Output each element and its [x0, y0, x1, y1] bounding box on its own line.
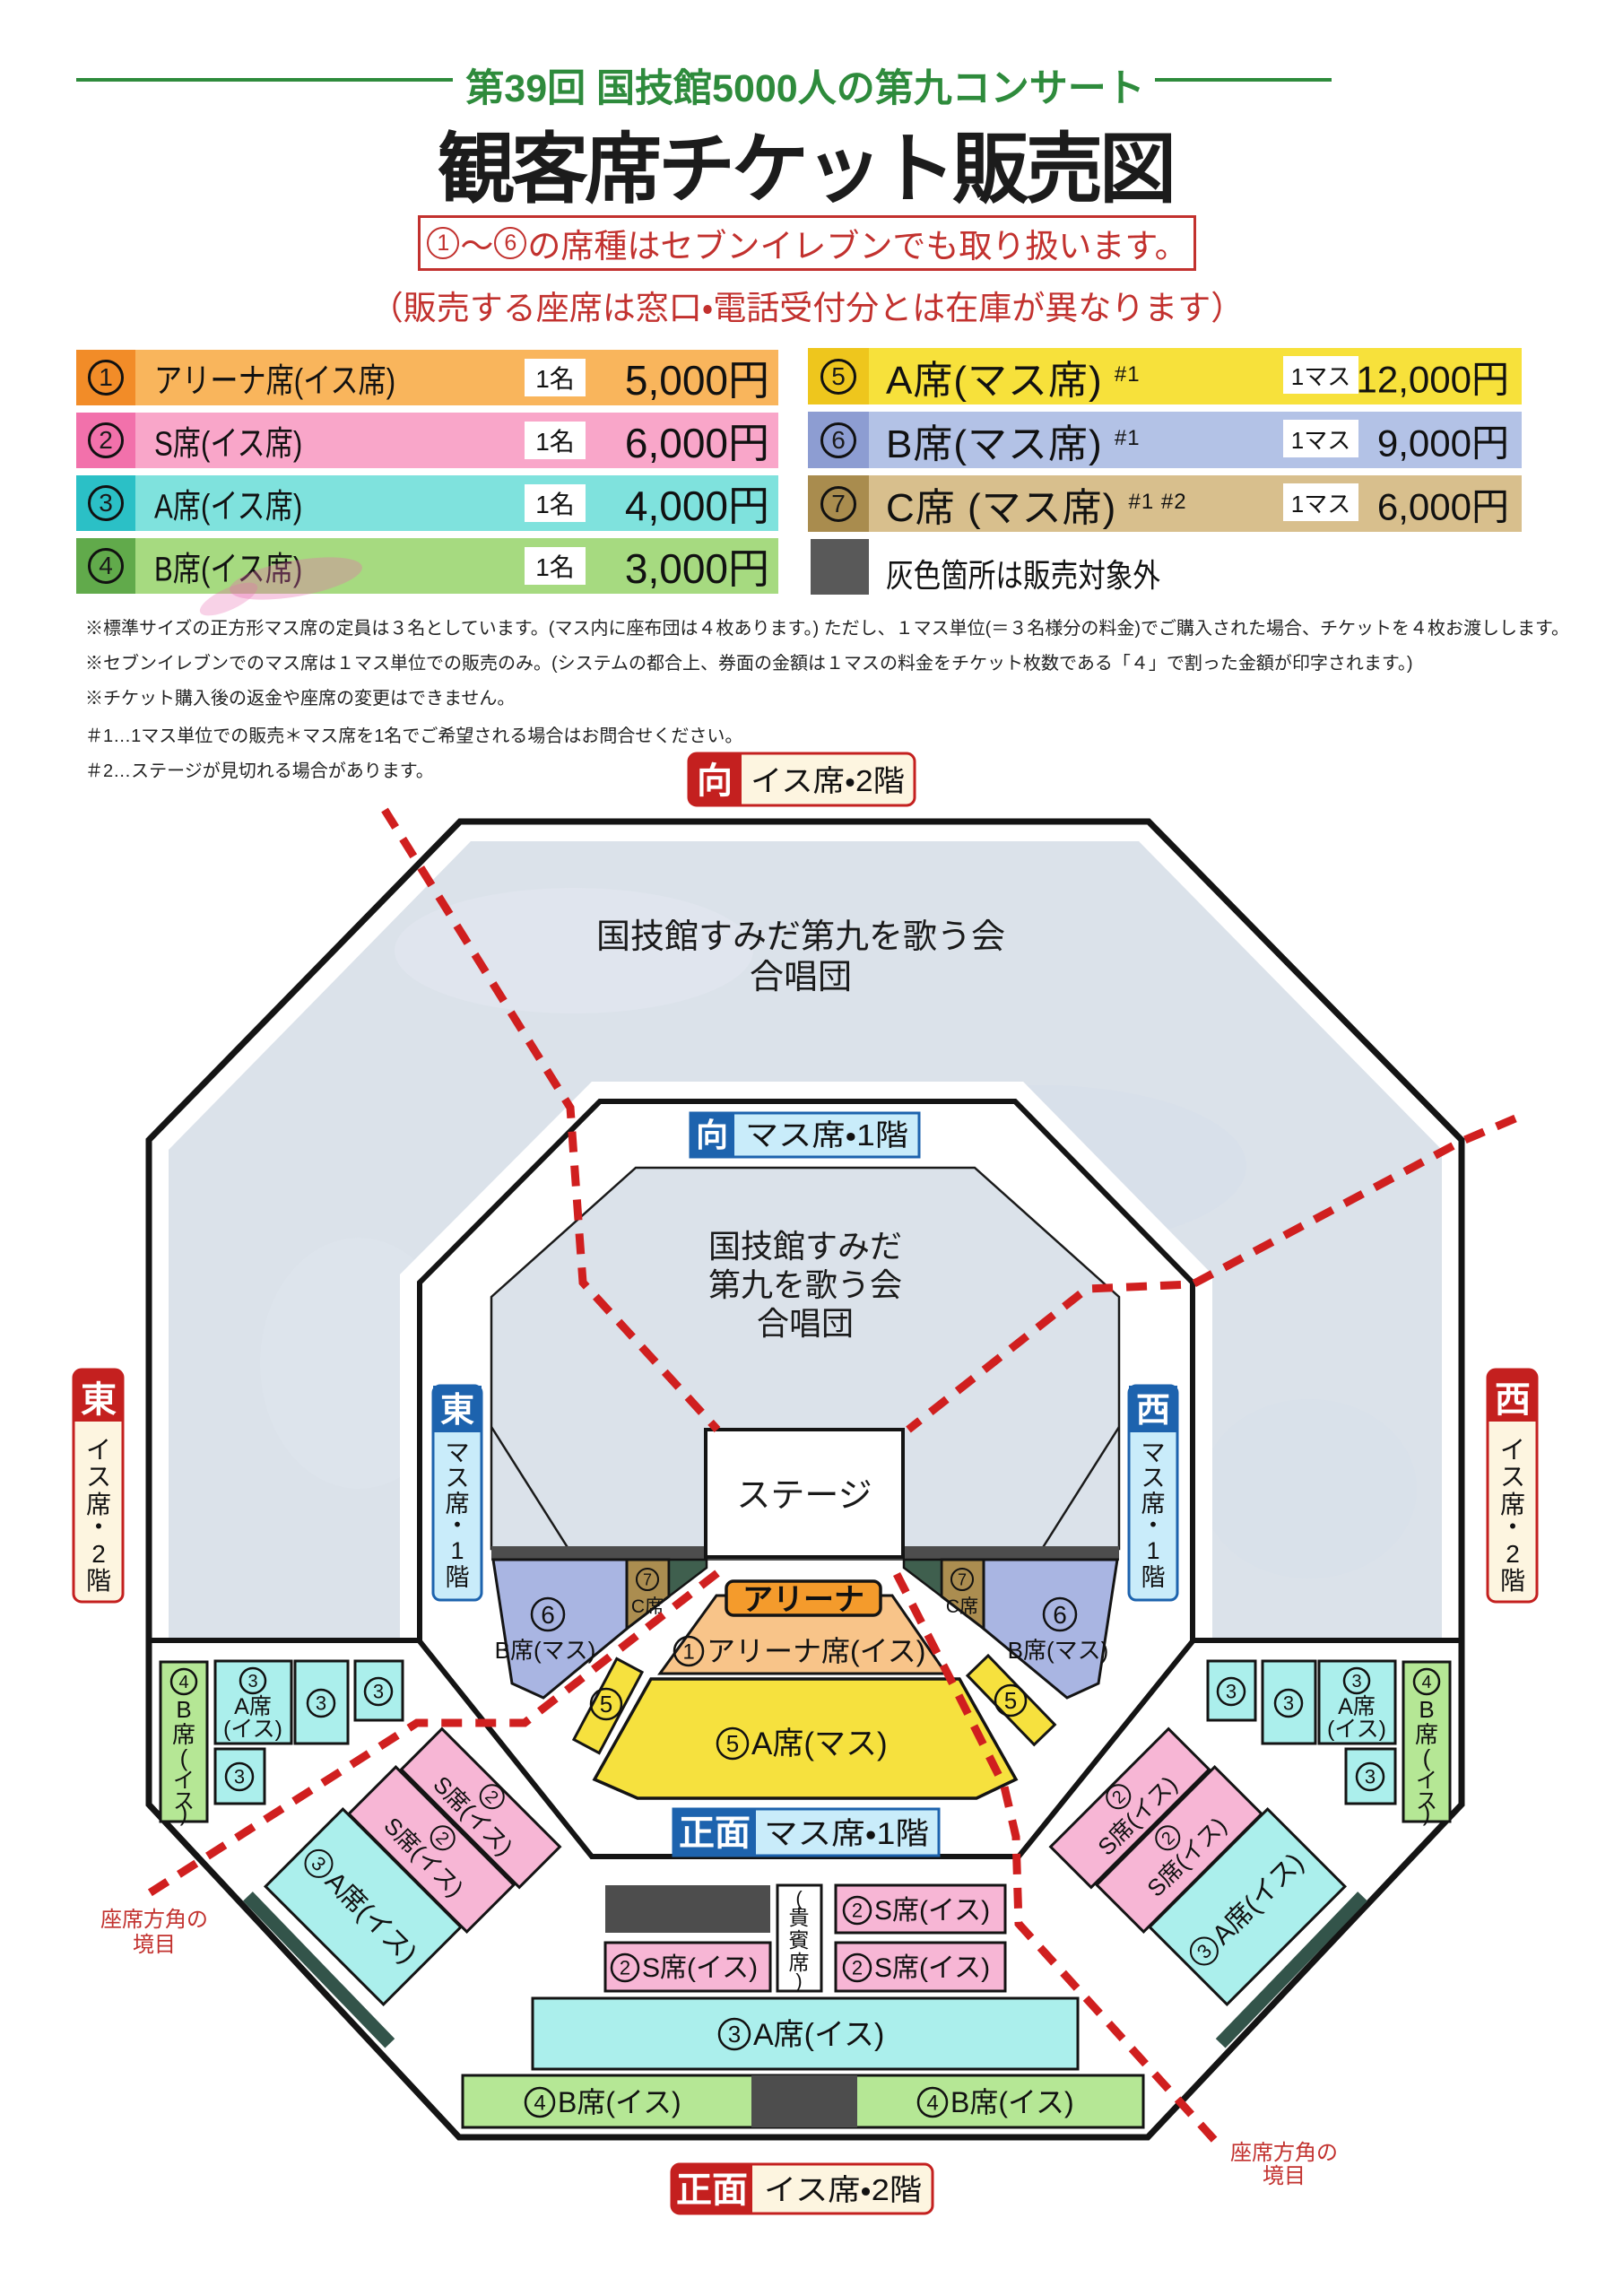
svg-text:イ: イ: [1500, 1436, 1525, 1464]
svg-text:向: 向: [697, 761, 733, 801]
svg-text:・: ・: [1141, 1512, 1166, 1539]
svg-text:A席: A席: [1338, 1694, 1376, 1719]
svg-text:6: 6: [541, 1601, 555, 1629]
svg-text:B席(イス): B席(イス): [558, 2086, 681, 2118]
svg-text:貴: 貴: [789, 1906, 810, 1929]
svg-text:7: 7: [643, 1570, 652, 1588]
svg-text:国技館すみだ第九を歌う会: 国技館すみだ第九を歌う会: [596, 918, 1005, 956]
svg-text:東: 東: [81, 1380, 117, 1420]
svg-text:5: 5: [1004, 1687, 1017, 1714]
svg-text:(: (: [1423, 1744, 1431, 1771]
svg-text:階: 階: [1141, 1564, 1166, 1591]
svg-text:3: 3: [1226, 1681, 1237, 1703]
svg-text:A席(イス): A席(イス): [753, 2018, 884, 2052]
svg-text:合唱団: 合唱団: [757, 1305, 854, 1342]
svg-text:ス: ス: [1141, 1465, 1166, 1492]
svg-text:第九を歌う会: 第九を歌う会: [708, 1266, 902, 1303]
svg-text:・: ・: [446, 1512, 470, 1539]
svg-text:A席: A席: [234, 1694, 272, 1719]
svg-text:3: 3: [234, 1766, 245, 1788]
svg-text:B: B: [176, 1696, 191, 1723]
svg-text:階: 階: [86, 1567, 111, 1595]
svg-text:4: 4: [926, 2091, 938, 2115]
svg-text:座席方角の: 座席方角の: [1230, 2141, 1338, 2165]
svg-text:5: 5: [726, 1730, 739, 1757]
svg-text:B: B: [1419, 1696, 1434, 1723]
svg-text:階: 階: [1500, 1567, 1525, 1595]
svg-text:2: 2: [91, 1540, 106, 1568]
svg-text:4: 4: [534, 2091, 545, 2115]
svg-text:): ): [180, 1799, 188, 1826]
svg-text:3: 3: [1365, 1766, 1376, 1788]
svg-text:B席(マス): B席(マス): [495, 1637, 596, 1664]
svg-text:): ): [795, 1970, 802, 1992]
svg-text:1: 1: [1146, 1537, 1159, 1564]
svg-text:ス: ス: [86, 1463, 111, 1491]
svg-text:国技館すみだ: 国技館すみだ: [708, 1228, 902, 1265]
svg-text:座席方角の: 座席方角の: [100, 1908, 208, 1932]
svg-text:ス: ス: [1500, 1463, 1525, 1491]
svg-text:東: 東: [440, 1392, 474, 1430]
svg-text:正面: 正面: [676, 2170, 748, 2210]
svg-text:マ: マ: [1141, 1439, 1166, 1466]
svg-text:5: 5: [600, 1691, 612, 1718]
svg-text:C席: C席: [946, 1596, 978, 1617]
svg-text:マス席・1階: マス席・1階: [745, 1118, 908, 1152]
svg-text:ステージ: ステージ: [736, 1477, 872, 1515]
svg-text:イス席・2階: イス席・2階: [764, 2173, 922, 2206]
svg-text:西: 西: [1495, 1380, 1531, 1420]
svg-text:2: 2: [620, 1957, 630, 1979]
svg-text:1: 1: [682, 1639, 694, 1664]
svg-text:境目: 境目: [133, 1933, 176, 1957]
svg-text:3: 3: [373, 1681, 384, 1703]
svg-text:正面: 正面: [679, 1813, 751, 1853]
svg-text:2: 2: [1506, 1540, 1520, 1568]
svg-text:階: 階: [446, 1564, 470, 1591]
svg-text:7: 7: [958, 1570, 967, 1588]
svg-text:西: 西: [1136, 1392, 1170, 1430]
svg-text:4: 4: [1421, 1673, 1431, 1692]
svg-text:マ: マ: [446, 1439, 470, 1466]
svg-text:S席(イス): S席(イス): [874, 1896, 990, 1926]
svg-text:2: 2: [852, 1900, 863, 1922]
svg-text:3: 3: [316, 1692, 326, 1715]
svg-text:向: 向: [696, 1117, 728, 1153]
svg-text:イス席・2階: イス席・2階: [751, 764, 905, 797]
svg-text:(イス): (イス): [223, 1717, 282, 1742]
svg-text:(イス): (イス): [1327, 1717, 1386, 1742]
svg-text:合唱団: 合唱団: [750, 959, 852, 996]
svg-text:賓: 賓: [789, 1928, 810, 1952]
svg-text:B席(マス): B席(マス): [1008, 1637, 1109, 1664]
svg-text:(: (: [180, 1744, 188, 1771]
svg-text:イ: イ: [86, 1436, 111, 1464]
svg-text:): ): [1423, 1799, 1431, 1826]
svg-text:アリーナ: アリーナ: [742, 1583, 864, 1617]
svg-text:・: ・: [86, 1513, 111, 1541]
svg-text:S席(イス): S席(イス): [642, 1953, 758, 1983]
svg-text:3: 3: [1351, 1672, 1361, 1692]
svg-text:3: 3: [1283, 1692, 1294, 1715]
svg-text:2: 2: [852, 1957, 863, 1979]
svg-text:B席(イス): B席(イス): [950, 2086, 1074, 2118]
svg-text:4: 4: [178, 1673, 188, 1692]
svg-text:3: 3: [247, 1672, 257, 1692]
svg-text:・: ・: [1500, 1513, 1525, 1541]
svg-text:S席(イス): S席(イス): [874, 1953, 990, 1983]
svg-text:1: 1: [450, 1537, 464, 1564]
svg-text:6: 6: [1053, 1601, 1067, 1629]
svg-text:アリーナ席(イス): アリーナ席(イス): [707, 1635, 925, 1667]
svg-text:マス席・1階: マス席・1階: [764, 1817, 929, 1851]
svg-text:A席(マス): A席(マス): [751, 1726, 888, 1761]
svg-text:3: 3: [728, 2021, 741, 2048]
svg-text:ス: ス: [446, 1465, 470, 1492]
svg-text:境目: 境目: [1263, 2164, 1306, 2188]
